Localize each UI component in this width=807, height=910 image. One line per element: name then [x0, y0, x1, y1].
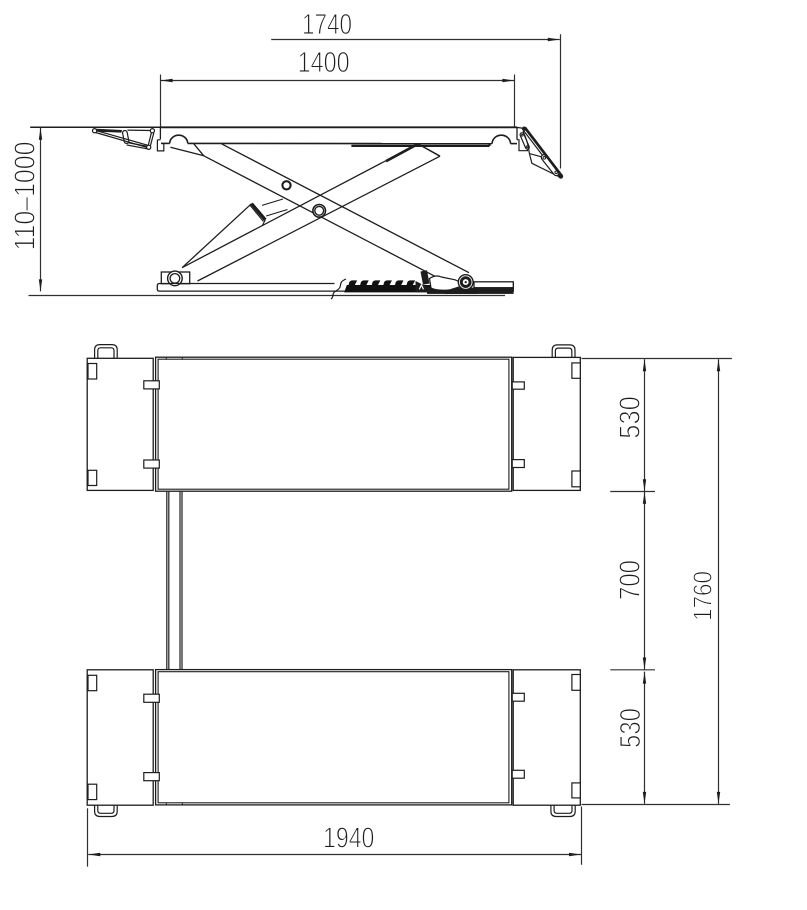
svg-text:1740: 1740: [302, 9, 352, 41]
svg-text:530: 530: [615, 396, 647, 439]
svg-text:110–1000: 110–1000: [9, 142, 41, 251]
svg-text:700: 700: [615, 560, 647, 600]
svg-text:1940: 1940: [323, 823, 375, 855]
svg-text:530: 530: [615, 708, 647, 748]
svg-text:1760: 1760: [688, 571, 718, 621]
svg-text:1400: 1400: [298, 47, 350, 79]
